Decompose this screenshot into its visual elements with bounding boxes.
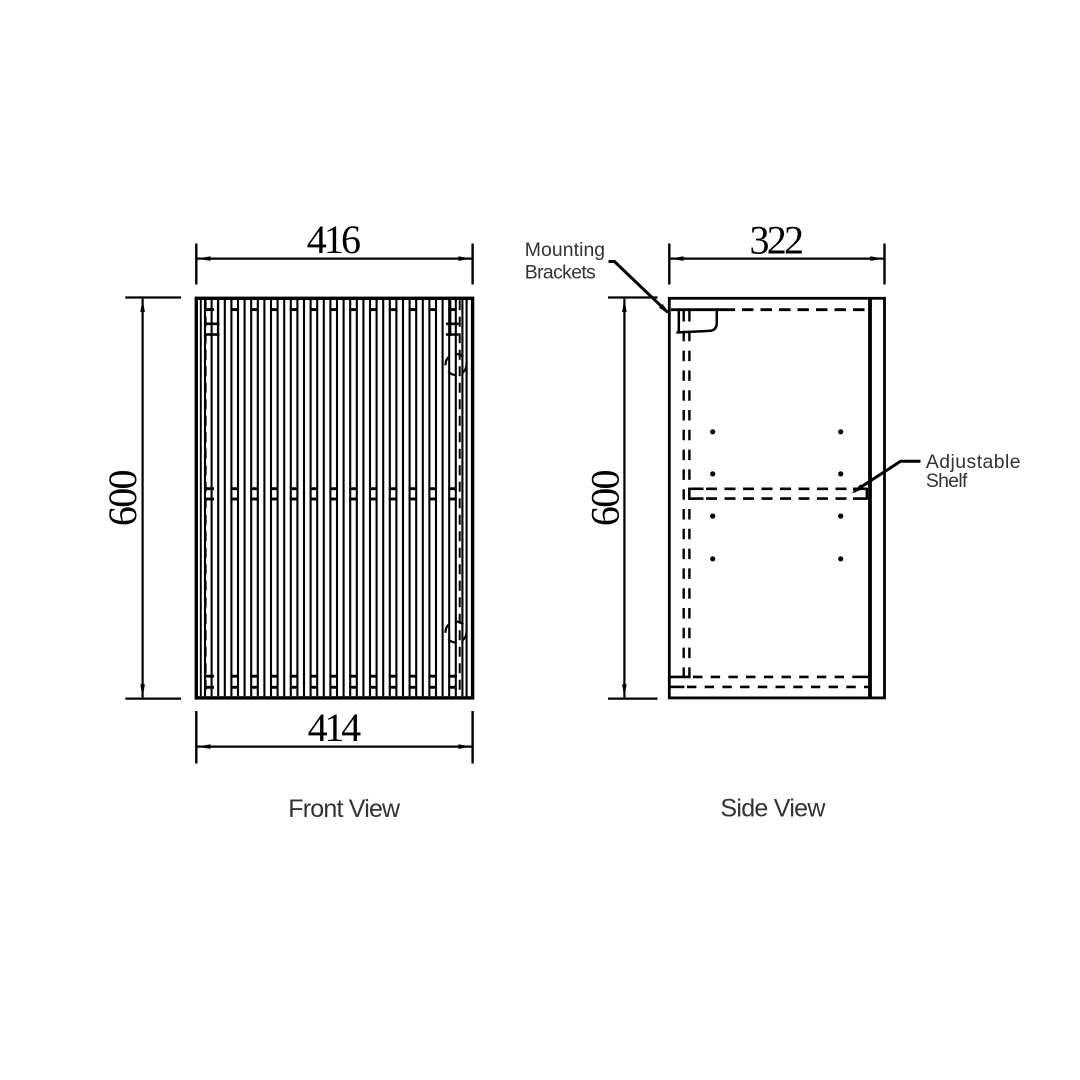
svg-text:322: 322 <box>749 217 804 262</box>
svg-text:414: 414 <box>308 705 362 750</box>
svg-text:Side View: Side View <box>720 794 826 822</box>
svg-text:Front View: Front View <box>288 795 401 823</box>
svg-text:Brackets: Brackets <box>525 261 596 283</box>
svg-text:600: 600 <box>582 469 627 526</box>
svg-text:600: 600 <box>100 469 145 526</box>
svg-text:416: 416 <box>307 217 361 262</box>
svg-text:Mounting: Mounting <box>525 239 605 261</box>
svg-text:Shelf: Shelf <box>926 470 968 492</box>
